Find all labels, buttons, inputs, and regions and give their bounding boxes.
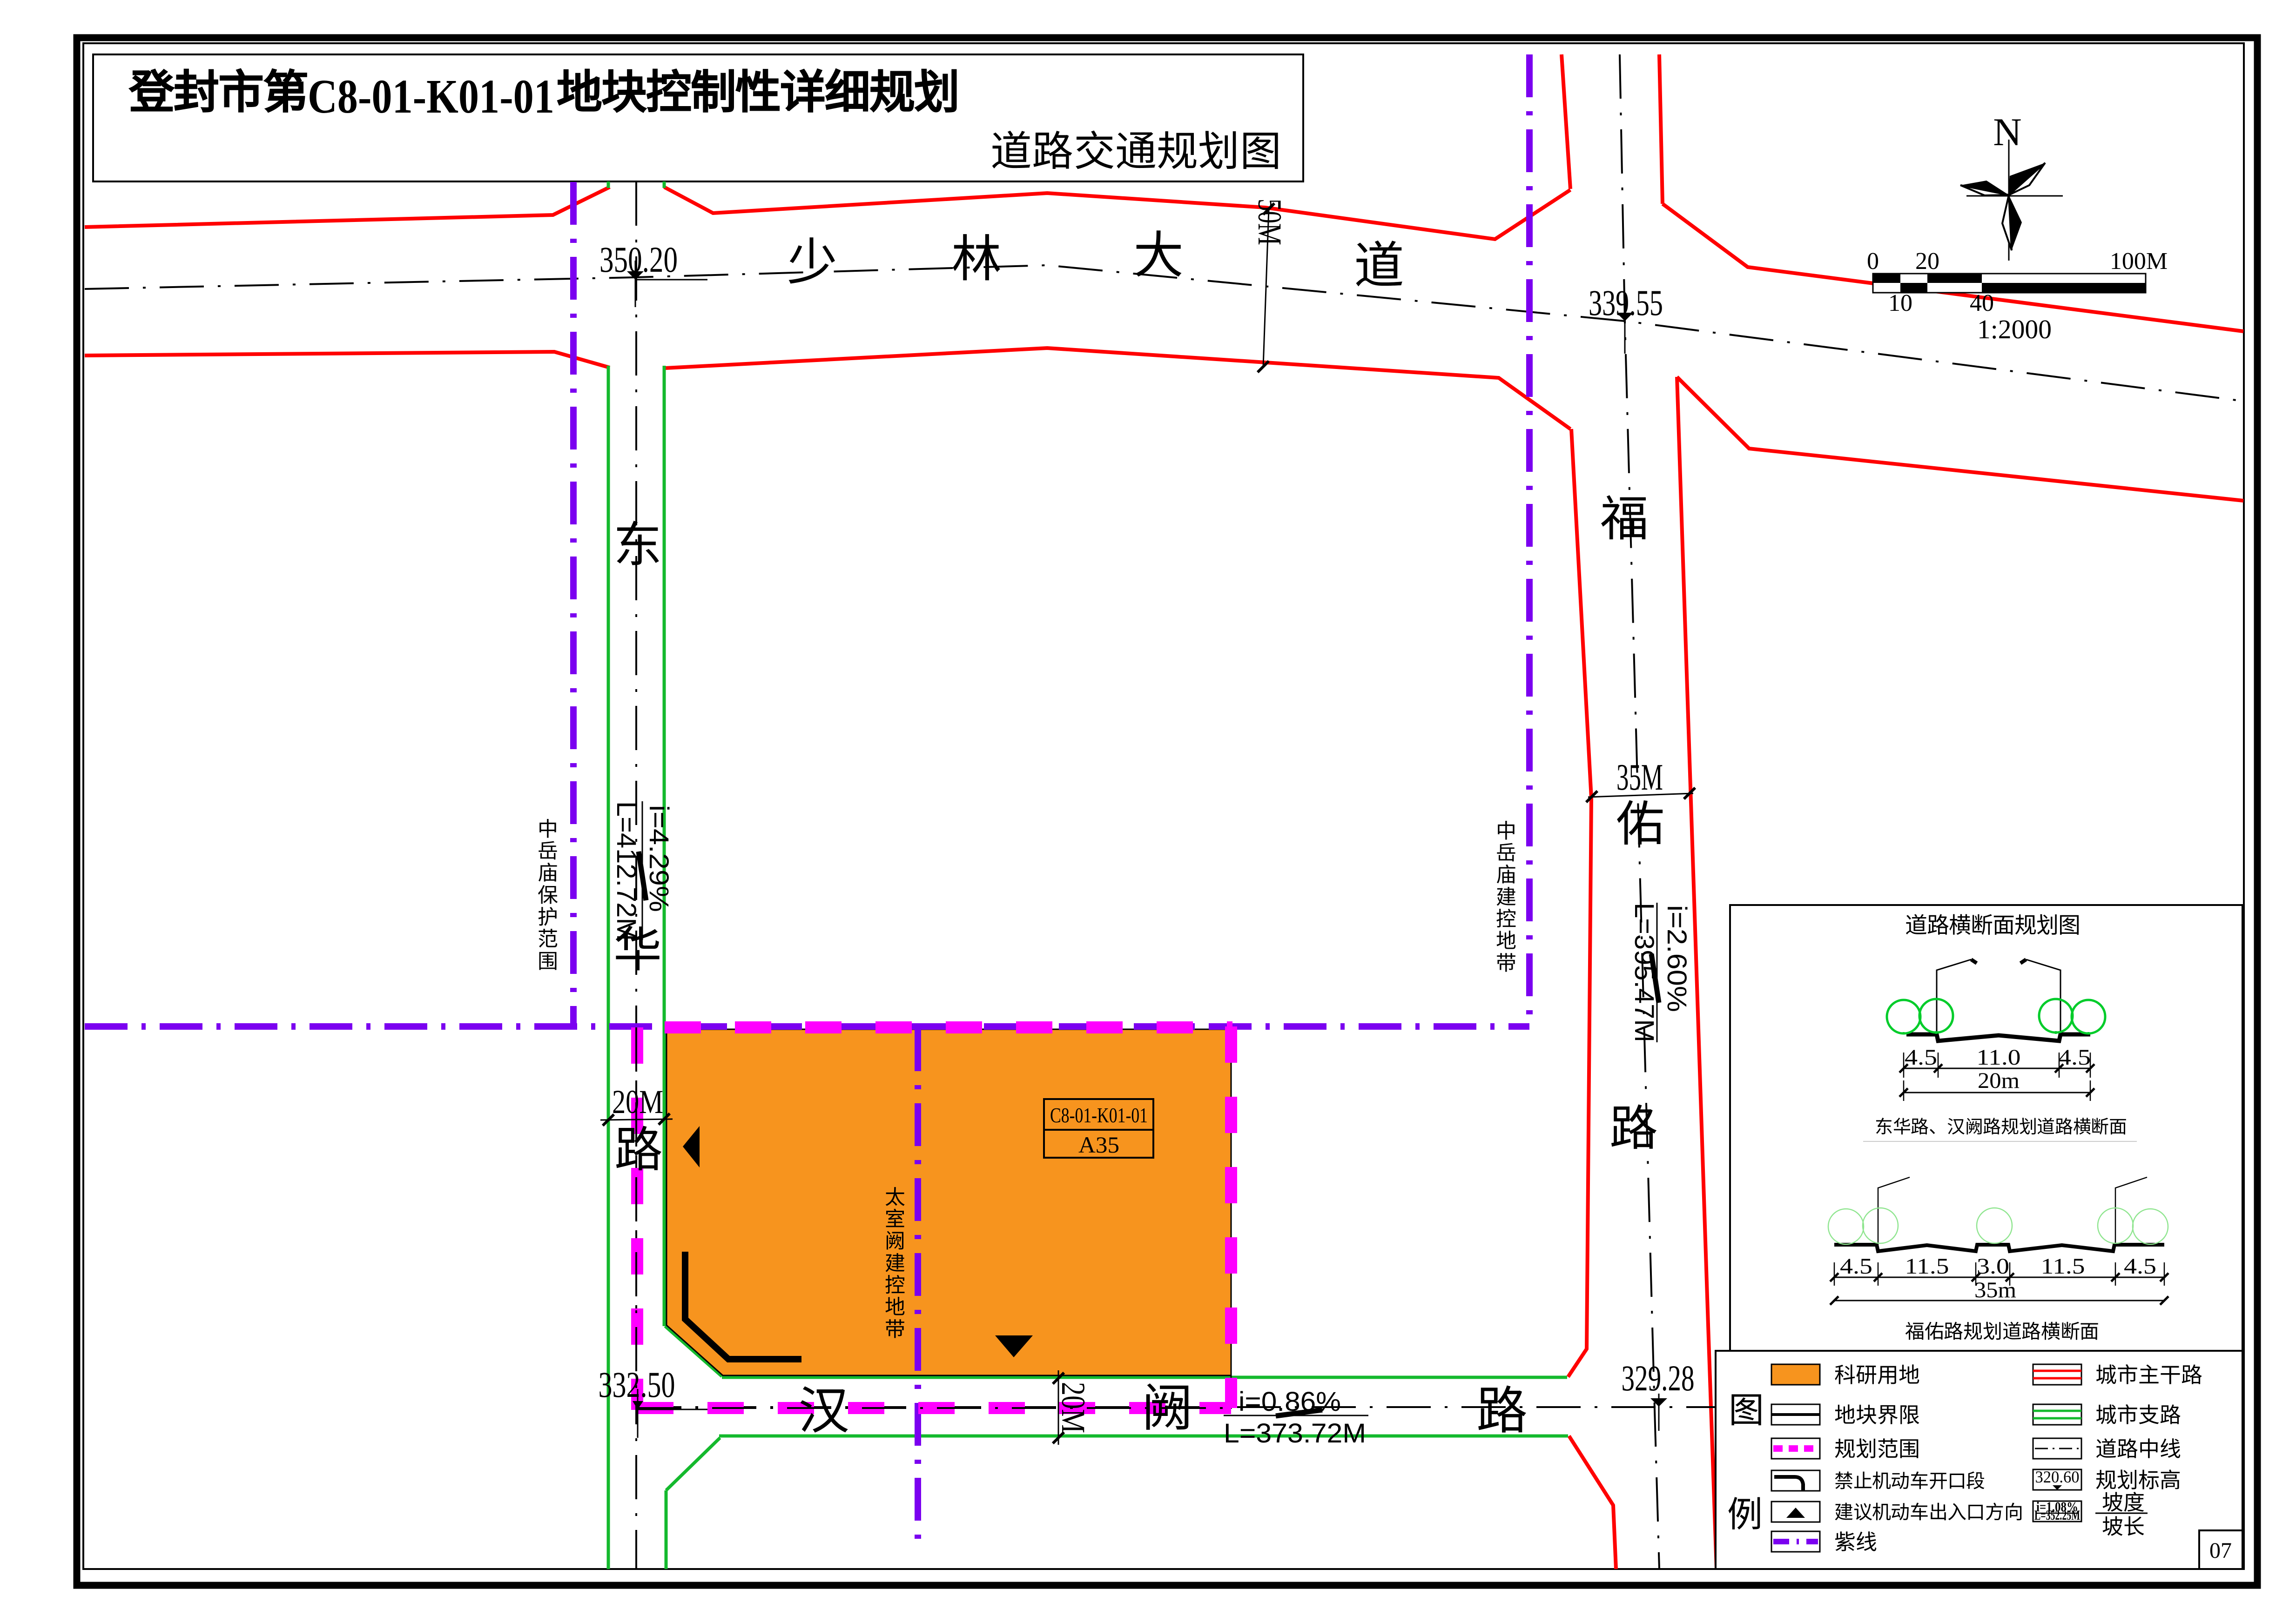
- svg-text:4.5: 4.5: [2124, 1254, 2156, 1279]
- svg-text:20M: 20M: [1055, 1382, 1092, 1433]
- svg-text:L=373.72M: L=373.72M: [1224, 1418, 1366, 1449]
- svg-text:50M: 50M: [1251, 199, 1288, 245]
- svg-text:4.5: 4.5: [1840, 1254, 1872, 1279]
- svg-text:1:2000: 1:2000: [1977, 314, 2052, 344]
- svg-text:L=412.72M: L=412.72M: [611, 801, 641, 941]
- svg-text:4.5: 4.5: [1905, 1045, 1937, 1070]
- svg-text:N: N: [1993, 110, 2021, 154]
- svg-text:20m: 20m: [1978, 1068, 2020, 1093]
- svg-text:A35: A35: [1078, 1132, 1119, 1158]
- svg-text:i=2.60%: i=2.60%: [1662, 905, 1692, 1012]
- svg-text:20M: 20M: [612, 1083, 663, 1120]
- svg-text:0: 0: [1867, 248, 1879, 275]
- svg-text:35M: 35M: [1616, 757, 1663, 798]
- svg-text:11.0: 11.0: [1977, 1045, 2021, 1070]
- svg-text:07: 07: [2209, 1538, 2232, 1563]
- svg-text:C8-01-K01-01: C8-01-K01-01: [308, 70, 554, 123]
- svg-text:35m: 35m: [1974, 1278, 2016, 1302]
- svg-text:11.5: 11.5: [2041, 1254, 2085, 1279]
- svg-text:11.5: 11.5: [1905, 1254, 1949, 1279]
- svg-text:L=352.25M: L=352.25M: [2034, 1508, 2080, 1523]
- svg-text:10: 10: [1888, 290, 1912, 316]
- svg-text:320.60: 320.60: [2035, 1468, 2080, 1486]
- svg-text:C8-01-K01-01: C8-01-K01-01: [1050, 1103, 1148, 1127]
- svg-text:100M: 100M: [2110, 248, 2168, 275]
- svg-text:40: 40: [1970, 290, 1994, 316]
- svg-text:4.5: 4.5: [2058, 1045, 2091, 1070]
- svg-text:3.0: 3.0: [1977, 1254, 2009, 1279]
- svg-text:332.50: 332.50: [599, 1364, 675, 1405]
- svg-text:i=4.29%: i=4.29%: [644, 805, 674, 912]
- svg-text:329.28: 329.28: [1622, 1358, 1695, 1398]
- svg-text:20: 20: [1915, 248, 1939, 275]
